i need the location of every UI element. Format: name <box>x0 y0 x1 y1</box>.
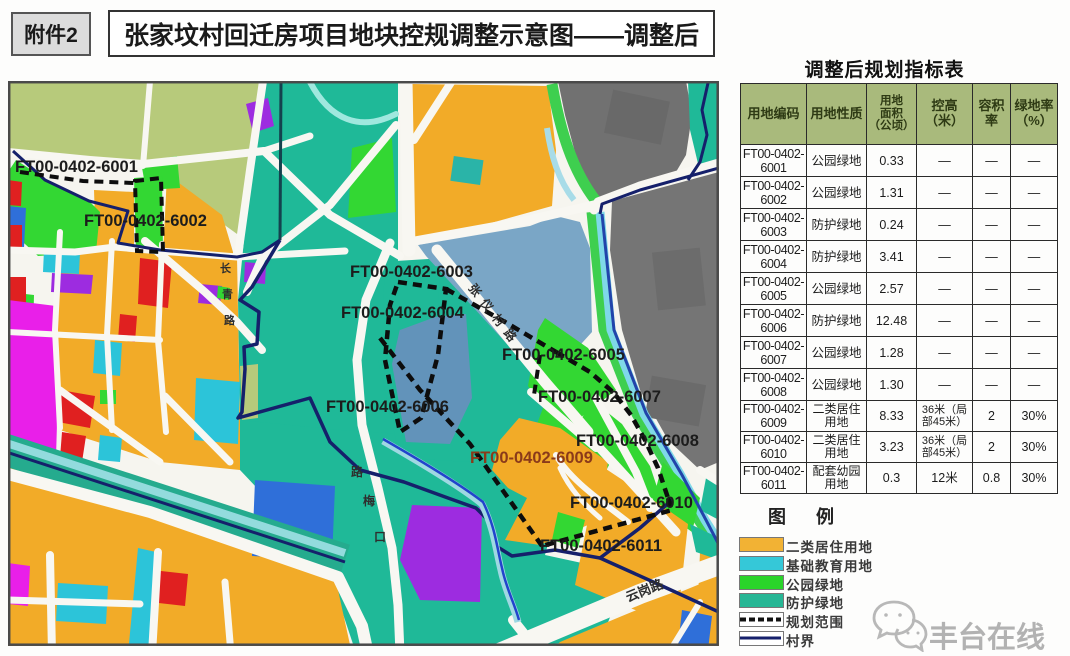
svg-text:FT00-0402-6011: FT00-0402-6011 <box>540 537 662 555</box>
svg-text:梅: 梅 <box>363 493 375 508</box>
svg-text:FT00-0402-6002: FT00-0402-6002 <box>84 212 207 230</box>
svg-text:FT00-0402-6007: FT00-0402-6007 <box>538 388 661 406</box>
svg-text:FT00-0402-6008: FT00-0402-6008 <box>576 432 699 450</box>
svg-text:FT00-0402-6004: FT00-0402-6004 <box>341 304 465 322</box>
svg-text:FT00-0402-6005: FT00-0402-6005 <box>502 346 625 364</box>
svg-text:FT00-0402-6006: FT00-0402-6006 <box>326 398 449 416</box>
svg-text:FT00-0402-6001: FT00-0402-6001 <box>15 158 138 176</box>
svg-text:路: 路 <box>351 464 364 479</box>
svg-text:口: 口 <box>374 530 386 544</box>
svg-text:FT00-0402-6010: FT00-0402-6010 <box>570 494 693 512</box>
svg-text:青: 青 <box>222 287 233 301</box>
svg-text:长: 长 <box>220 261 232 275</box>
svg-text:FT00-0402-6009: FT00-0402-6009 <box>470 449 593 467</box>
svg-text:FT00-0402-6003: FT00-0402-6003 <box>350 263 473 281</box>
svg-text:路: 路 <box>224 313 236 327</box>
